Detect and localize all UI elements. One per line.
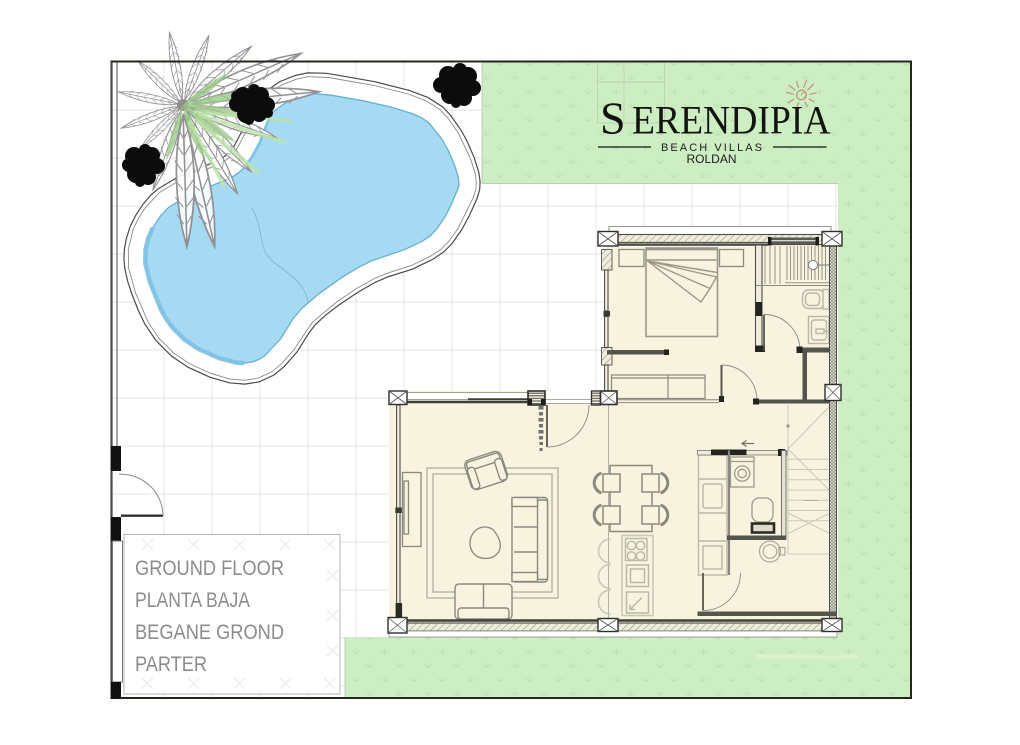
- svg-text:S: S: [600, 93, 626, 144]
- svg-text:PLANTA BAJA: PLANTA BAJA: [135, 589, 250, 612]
- svg-text:BEGANE GROND: BEGANE GROND: [135, 621, 284, 644]
- svg-text:ROLDAN: ROLDAN: [687, 152, 737, 166]
- svg-text:GROUND FLOOR: GROUND FLOOR: [135, 557, 284, 580]
- svg-text:ERENDIPIA: ERENDIPIA: [632, 98, 831, 143]
- svg-text:PARTER: PARTER: [135, 653, 207, 676]
